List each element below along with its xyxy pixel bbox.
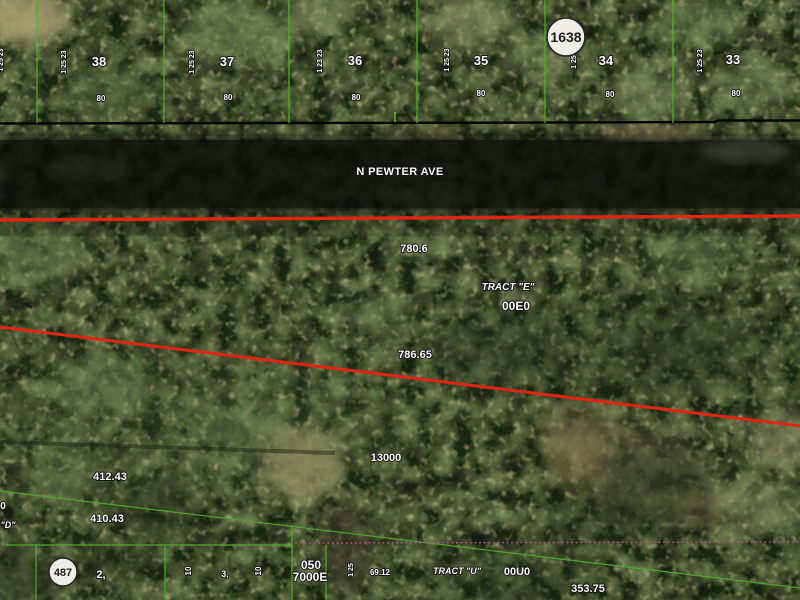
- svg-text:786.65: 786.65: [398, 349, 432, 361]
- svg-text:37: 37: [220, 54, 234, 69]
- svg-text:69.12: 69.12: [370, 568, 391, 577]
- svg-text:7000E: 7000E: [293, 570, 328, 584]
- svg-text:TRACT "E": TRACT "E": [482, 282, 535, 293]
- svg-text:1 25: 1 25: [348, 563, 355, 577]
- svg-text:36: 36: [348, 53, 362, 68]
- svg-text:80: 80: [477, 89, 486, 98]
- svg-text:410.43: 410.43: [90, 513, 124, 525]
- svg-text:1 25: 1 25: [571, 55, 578, 69]
- svg-text:00E0: 00E0: [502, 299, 530, 313]
- svg-text:1 25 23: 1 25 23: [61, 50, 68, 73]
- svg-text:10: 10: [184, 566, 193, 575]
- svg-text:80: 80: [732, 89, 741, 98]
- svg-text:38: 38: [92, 54, 106, 69]
- svg-text:1638: 1638: [550, 29, 581, 45]
- svg-text:2,: 2,: [96, 569, 105, 581]
- svg-text:10: 10: [254, 566, 263, 575]
- svg-text:412.43: 412.43: [93, 471, 127, 483]
- svg-text:1 25 23: 1 25 23: [444, 48, 451, 71]
- svg-text:"D": "D": [0, 520, 16, 530]
- svg-text:80: 80: [352, 93, 361, 102]
- svg-text:13000: 13000: [371, 452, 402, 464]
- svg-text:1 25 23: 1 25 23: [0, 48, 5, 71]
- svg-text:3,: 3,: [221, 569, 229, 579]
- svg-text:353.75: 353.75: [571, 583, 605, 595]
- svg-text:80: 80: [97, 94, 106, 103]
- svg-text:33: 33: [726, 52, 740, 67]
- svg-text:TRACT "U": TRACT "U": [433, 566, 482, 576]
- svg-text:00U0: 00U0: [504, 566, 530, 578]
- svg-text:1 23 23: 1 23 23: [317, 49, 324, 72]
- svg-text:780.6: 780.6: [400, 243, 428, 255]
- svg-text:34: 34: [599, 53, 614, 68]
- svg-text:N PEWTER AVE: N PEWTER AVE: [356, 166, 443, 178]
- svg-text:80: 80: [224, 93, 233, 102]
- svg-text:1 25 23: 1 25 23: [189, 50, 196, 73]
- svg-text:1 25 23: 1 25 23: [697, 49, 704, 72]
- svg-text:80: 80: [606, 90, 615, 99]
- svg-text:35: 35: [474, 53, 488, 68]
- svg-text:487: 487: [54, 567, 72, 579]
- svg-text:0: 0: [0, 501, 6, 512]
